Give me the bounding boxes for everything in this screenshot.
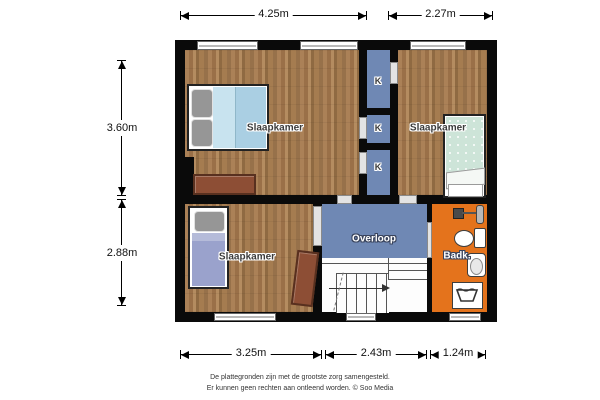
pillow-icon: [194, 211, 225, 232]
window-icon: [410, 41, 466, 50]
stair-arrow-head: [382, 284, 390, 292]
stair-landing-line: [388, 279, 427, 280]
dimension-label: 4.25m: [254, 8, 293, 20]
dimension-bottom-middle: 2.43m: [325, 350, 427, 360]
pillow-icon: [191, 89, 213, 118]
stair-landing-line: [388, 270, 427, 271]
window-icon: [449, 313, 481, 321]
radiator-pipe: [462, 212, 476, 214]
door-icon: [427, 222, 432, 258]
stair-direction-arrow: [329, 288, 383, 289]
dimension-label: 3.25m: [232, 347, 271, 359]
single-bed-icon: [188, 206, 229, 289]
door-icon: [313, 206, 322, 246]
window-icon: [197, 41, 258, 50]
stairs-icon: [336, 273, 389, 313]
footer-disclaimer: De plattegronden zijn met de grootste zo…: [0, 372, 600, 394]
door-icon: [337, 195, 352, 204]
toilet-icon: [454, 230, 474, 247]
window-icon: [300, 41, 358, 50]
chimney-wall: [175, 157, 194, 204]
pillow-icon: [191, 119, 213, 147]
floorplan-canvas: 4.25m 2.27m 3.60m 2.88m 3.25m 2.43m 1.24…: [0, 0, 600, 400]
closet-3: [367, 150, 390, 195]
dimension-label: 2.88m: [106, 245, 139, 261]
closet-label: K: [375, 162, 382, 172]
room-label-bedroom-top-right: Slaapkamer: [410, 123, 466, 134]
closet-label: K: [375, 123, 382, 133]
dimension-label: 2.27m: [421, 8, 460, 20]
bed-footboard: [448, 184, 483, 197]
closet-label: K: [375, 76, 382, 86]
room-label-bedroom-bottom-left: Slaapkamer: [219, 252, 275, 263]
dimension-left-lower: 2.88m: [117, 199, 127, 306]
closet-door-icon: [390, 62, 398, 84]
closet-door-icon: [359, 117, 367, 139]
closet-door-icon: [359, 152, 367, 174]
room-label-landing: Overloop: [352, 234, 396, 245]
dimension-top-right: 2.27m: [388, 11, 493, 21]
washing-machine-tub-glyph: [453, 284, 481, 306]
dimension-label: 2.43m: [357, 347, 396, 359]
washing-machine-icon: [452, 282, 483, 309]
bed-sheet-fold: [213, 87, 236, 148]
double-bed-icon: [187, 84, 269, 151]
dimension-label: 3.60m: [106, 120, 139, 136]
dimension-top-left: 4.25m: [180, 11, 367, 21]
bed-sheet-fold: [192, 233, 225, 241]
room-landing: [322, 204, 427, 258]
toilet-tank-icon: [474, 228, 486, 248]
dimension-label: 1.24m: [439, 347, 478, 359]
window-icon: [346, 313, 376, 321]
dresser-icon: [193, 174, 256, 195]
dimension-left-upper: 3.60m: [117, 60, 127, 196]
footer-line-2: Er kunnen geen rechten aan ontleend word…: [0, 383, 600, 394]
towel-rail-icon: [476, 205, 484, 224]
footer-line-1: De plattegronden zijn met de grootste zo…: [0, 372, 600, 383]
room-label-bedroom-top-left: Slaapkamer: [247, 123, 303, 134]
dimension-bottom-left: 3.25m: [180, 350, 322, 360]
window-icon: [214, 313, 276, 321]
dimension-bottom-right: 1.24m: [430, 350, 486, 360]
room-label-bathroom: Badk.: [443, 251, 470, 262]
stair-landing-line: [322, 263, 427, 264]
stair-landing-line: [388, 258, 389, 279]
door-icon: [399, 195, 417, 204]
sink-basin: [470, 258, 483, 275]
